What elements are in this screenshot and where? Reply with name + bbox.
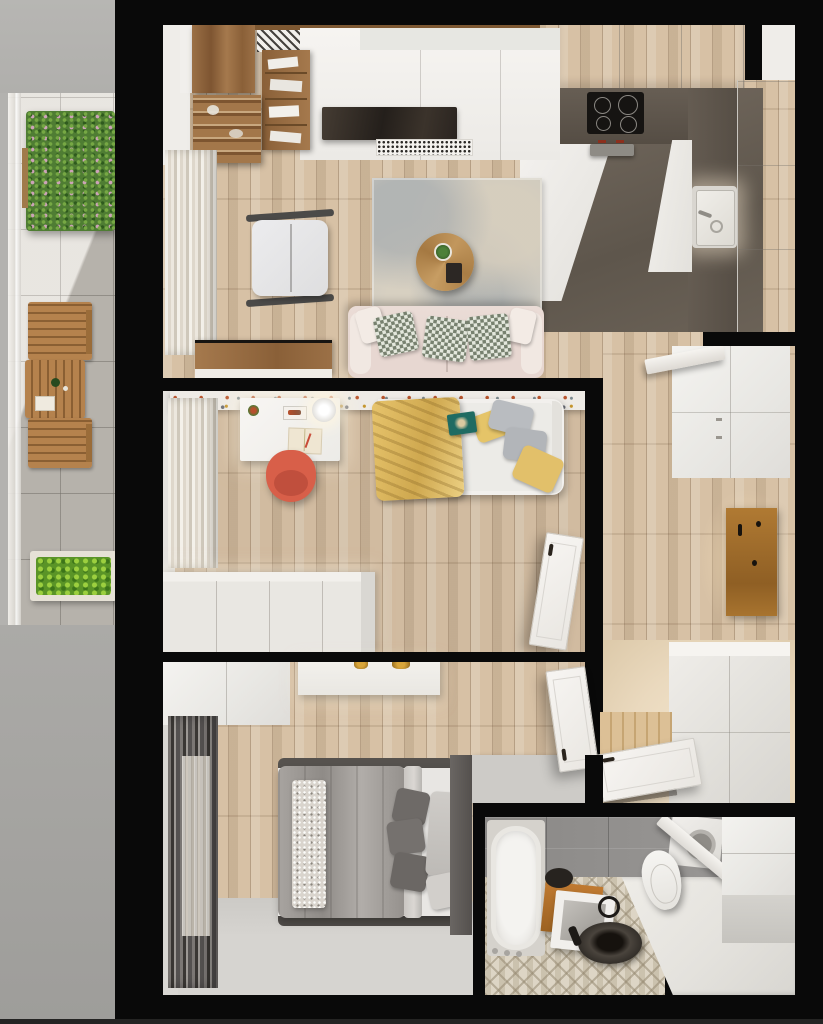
balcony-bistro-table	[25, 360, 85, 418]
shelf-decor	[229, 129, 243, 138]
coat-hook	[756, 521, 761, 527]
wall-office-hall	[585, 391, 603, 538]
office-chair	[266, 450, 316, 502]
notebook-pencil	[305, 433, 312, 448]
shoe-cabinet-seam	[669, 732, 790, 733]
burner	[594, 97, 611, 114]
sofa-pillow-1	[372, 310, 419, 357]
outside-ground-top	[0, 0, 115, 93]
sideboard-top-edge	[195, 340, 332, 343]
bathtub	[491, 826, 541, 950]
kitchen-hood-controls	[590, 144, 634, 156]
office-dresser	[163, 572, 375, 652]
entry-door-handle	[602, 757, 615, 763]
books	[270, 79, 303, 92]
office-bed	[378, 399, 564, 495]
burner	[596, 116, 611, 131]
notepad	[35, 396, 55, 411]
tv	[322, 107, 457, 140]
kitchen-tall-cabinets	[737, 80, 796, 333]
balcony-planter-edge	[22, 148, 28, 208]
round-handle	[598, 896, 620, 918]
teal-book	[447, 411, 478, 436]
red-knob	[616, 140, 624, 143]
planter-leaves	[36, 557, 111, 595]
sideboard-front	[195, 369, 332, 378]
wall-kitchen-hall-stub	[703, 332, 795, 346]
teal-book-art	[452, 416, 471, 430]
wall-top	[163, 0, 823, 25]
vessel-sink	[578, 922, 642, 964]
artwork-mark	[288, 410, 301, 415]
bedroom-bed	[278, 758, 470, 928]
wall-bathroom-left	[473, 803, 485, 995]
shelf-line	[265, 72, 307, 74]
bedroom-door-handle	[561, 749, 567, 761]
coat-hook	[738, 524, 742, 536]
kitchen-cooktop	[587, 92, 644, 134]
balcony-floor	[8, 93, 115, 625]
bed-sparkly-runner	[292, 780, 326, 908]
soundbar-grille	[376, 139, 473, 156]
bottom-edge-line	[0, 1019, 823, 1024]
wall-living-office	[163, 378, 603, 391]
desk-artwork	[283, 406, 307, 420]
office-chair-seat	[274, 470, 308, 496]
wardrobe-side-panel	[180, 25, 192, 93]
shoe-cabinet-seam	[729, 656, 730, 803]
wall-office-bedroom	[163, 652, 603, 662]
balcony-chair-top	[28, 302, 92, 360]
wall-left	[115, 0, 163, 1024]
bathroom-cabinet-seam	[722, 853, 795, 854]
bathroom-wall-cabinet	[722, 813, 795, 895]
sofa-pillow-2	[421, 315, 470, 363]
bedroom-partition-dark	[450, 755, 472, 935]
yellow-throw	[371, 397, 464, 501]
balcony-flower-planter	[26, 111, 115, 231]
wall-right	[795, 0, 823, 1024]
burner	[618, 95, 638, 115]
hall-wardrobe-handles	[716, 418, 722, 421]
shelf-decor	[207, 105, 219, 115]
desk-lamp	[312, 398, 336, 422]
coat-hook	[752, 560, 757, 566]
bedroom-sheer	[182, 756, 210, 936]
burner	[620, 116, 637, 133]
outside-ground-bottom	[0, 625, 115, 1024]
armchair	[246, 212, 334, 304]
desk-plant	[248, 405, 259, 416]
coat-panel	[726, 508, 777, 616]
living-curtain	[165, 150, 217, 355]
table-tray	[446, 263, 462, 283]
sink-drain	[710, 220, 723, 233]
wall-bedroom-hall	[585, 755, 603, 803]
sofa-pillow-3	[466, 313, 512, 361]
media-wall-seam	[500, 50, 501, 160]
chair-rail	[86, 424, 92, 462]
outside-ground-edge	[0, 93, 8, 625]
apartment-floor-plan	[0, 0, 823, 1024]
office-dresser-seam	[269, 581, 270, 652]
wine-bottle	[51, 378, 60, 387]
table-plant	[436, 245, 450, 259]
kitchen-wall-piece	[762, 25, 795, 80]
balcony-planter-box	[30, 551, 117, 601]
toilet-seat-line	[647, 861, 681, 906]
shelf-line	[265, 98, 307, 100]
armchair-cushion	[252, 220, 328, 296]
bed-pillow-2	[386, 818, 426, 857]
armchair-seat-line	[290, 224, 292, 292]
bathroom-cabinet-side	[722, 895, 795, 943]
sofa	[348, 306, 544, 378]
books	[268, 56, 299, 69]
kitchen-sink	[692, 186, 737, 248]
office-dresser-seam	[322, 581, 323, 652]
books	[269, 105, 300, 118]
office-door-handle	[548, 544, 554, 556]
shelf-line	[265, 124, 307, 126]
shoe-cabinet-top-face	[669, 642, 790, 656]
wall-bathroom-top	[485, 803, 795, 817]
bed-pillow-3	[389, 851, 431, 893]
dark-accessory	[545, 868, 573, 888]
balcony-chair-bottom	[28, 418, 92, 468]
chair-rail	[86, 310, 92, 354]
balcony-glass-railing	[8, 93, 21, 625]
red-knob	[598, 140, 606, 143]
office-curtain	[168, 398, 218, 568]
office-dresser-side	[361, 572, 375, 652]
living-wardrobe	[192, 25, 255, 93]
coffee-table	[416, 233, 474, 291]
wall-stub-top-right	[745, 25, 762, 80]
bedroom-wardrobe-seam	[226, 662, 227, 725]
office-dresser-seam	[216, 581, 217, 652]
books	[270, 131, 302, 144]
bedroom-curtains	[168, 716, 218, 988]
bookshelf-column	[262, 50, 310, 150]
sink-basin	[696, 190, 735, 246]
kitchen-upper-cabinets	[558, 25, 745, 88]
media-wall-upper-panel	[360, 28, 560, 50]
tub-taps	[492, 948, 498, 954]
sideboard	[195, 343, 332, 378]
hall-wardrobe-seam	[672, 412, 790, 413]
